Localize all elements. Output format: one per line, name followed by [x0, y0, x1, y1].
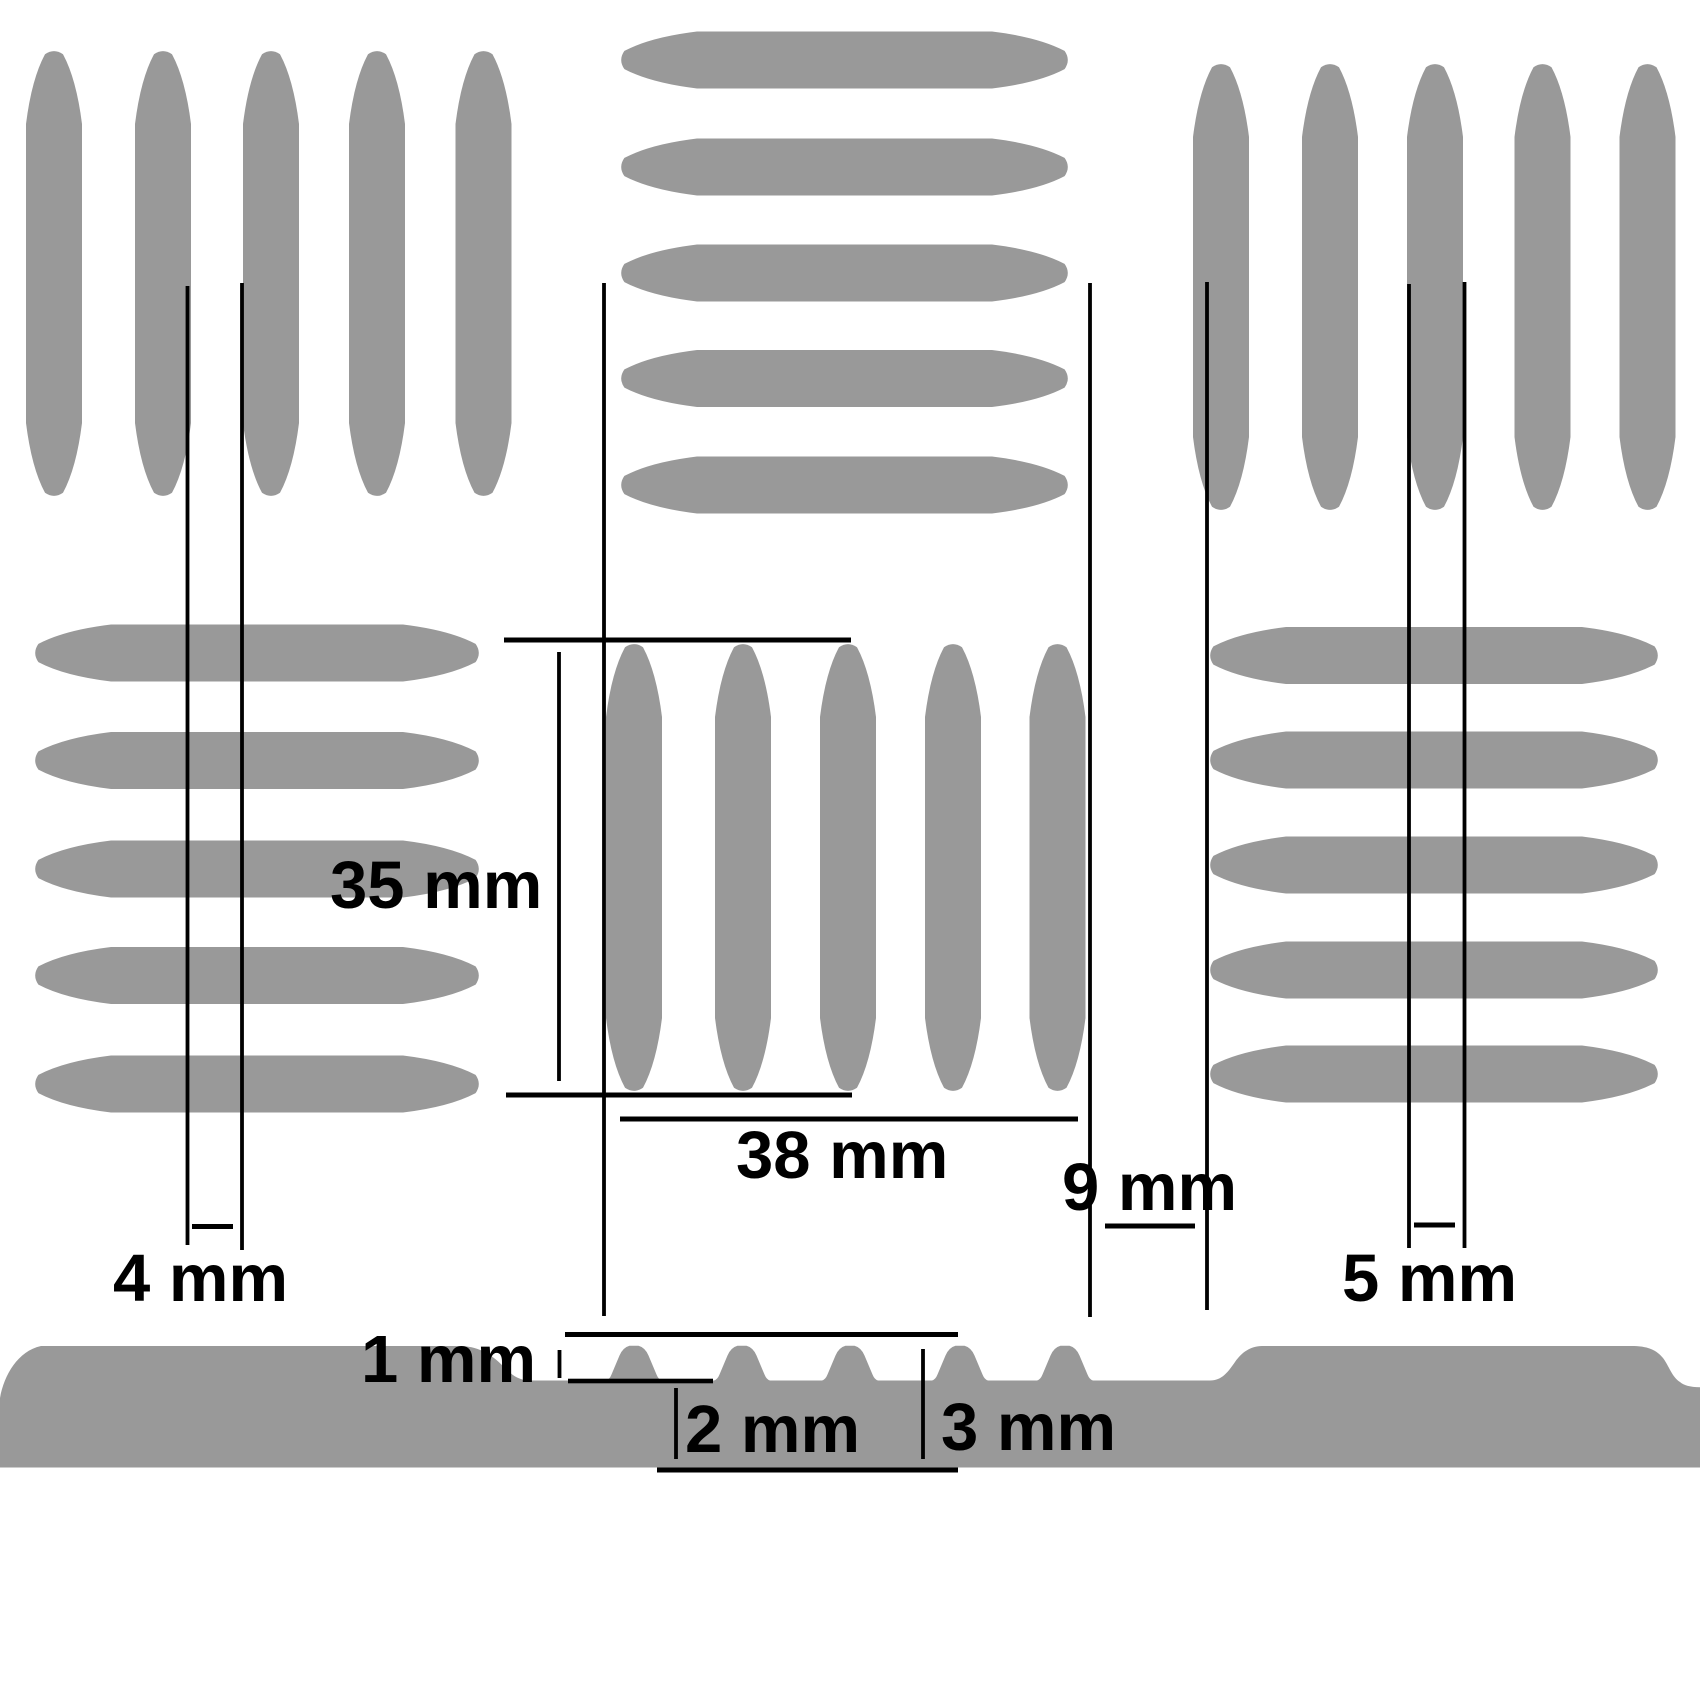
- svg-text:4 mm: 4 mm: [113, 1241, 288, 1316]
- svg-text:9 mm: 9 mm: [1062, 1150, 1237, 1225]
- svg-text:1 mm: 1 mm: [361, 1322, 536, 1397]
- svg-text:38 mm: 38 mm: [736, 1118, 948, 1193]
- svg-text:35 mm: 35 mm: [330, 848, 542, 923]
- svg-text:5 mm: 5 mm: [1342, 1241, 1517, 1316]
- svg-text:2 mm: 2 mm: [685, 1392, 860, 1467]
- svg-text:3 mm: 3 mm: [941, 1390, 1116, 1465]
